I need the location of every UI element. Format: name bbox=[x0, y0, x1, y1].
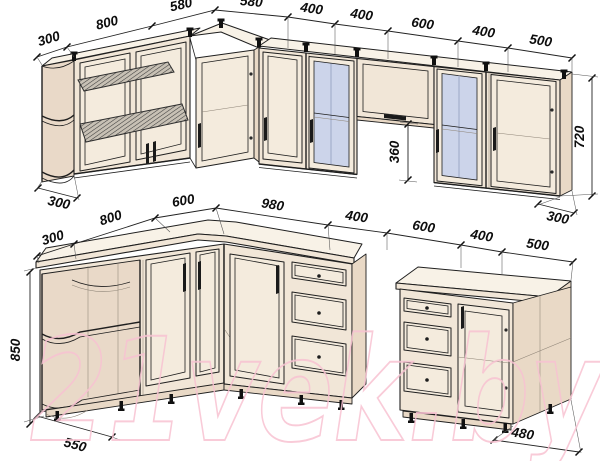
dim-upper-5: 400 bbox=[348, 5, 374, 23]
upper-cabinet-glass-400 bbox=[309, 57, 354, 174]
door-handle bbox=[146, 143, 149, 164]
dim-upper-7: 400 bbox=[470, 22, 496, 41]
dim-lower-2: 600 bbox=[171, 191, 196, 210]
dim-upper-open-height: 360 bbox=[387, 140, 402, 163]
dim-upper-0: 300 bbox=[36, 28, 62, 49]
door-handle bbox=[310, 119, 313, 143]
door-handle bbox=[183, 263, 186, 292]
hinge bbox=[550, 170, 553, 173]
dim-upper-height: 720 bbox=[572, 125, 587, 148]
dim-upper-2: 580 bbox=[168, 0, 194, 14]
dim-upper-3: 580 bbox=[240, 0, 264, 10]
door-handle bbox=[153, 141, 156, 162]
dim-lower-height: 850 bbox=[8, 338, 23, 361]
door-handle bbox=[276, 265, 279, 294]
dim-lower-1: 800 bbox=[98, 207, 125, 228]
upper-open-end-shelf bbox=[42, 60, 74, 183]
dim-upper-right-depth: 300 bbox=[545, 208, 570, 227]
door-handle bbox=[264, 117, 267, 141]
door-handle bbox=[198, 123, 201, 148]
dim-upper-1: 800 bbox=[94, 13, 120, 33]
dim-lower-7: 500 bbox=[525, 236, 550, 254]
upper-cabinet-glass-400b bbox=[436, 69, 482, 186]
upper-cabinet-door-500 bbox=[491, 75, 556, 194]
drawer-knob bbox=[317, 274, 321, 278]
kitchen-dimension-drawing: 300 800 580 580 400 400 600 400 500 360 … bbox=[0, 0, 600, 461]
dim-upper-6: 600 bbox=[410, 15, 435, 33]
hinge bbox=[550, 108, 553, 111]
door-handle bbox=[436, 129, 439, 153]
dim-lower-4: 400 bbox=[343, 207, 369, 225]
upper-cabinet-800-dish-rack bbox=[74, 36, 190, 178]
dim-lower-3: 980 bbox=[260, 195, 285, 213]
upper-corner-cabinet bbox=[190, 38, 259, 168]
upper-cabinet-flip-600 bbox=[357, 58, 434, 128]
hinge bbox=[249, 72, 252, 75]
door-handle bbox=[198, 261, 201, 290]
dim-upper-8: 500 bbox=[528, 31, 553, 49]
dim-lower-5: 600 bbox=[411, 217, 436, 235]
hinge bbox=[249, 136, 252, 139]
door-handle bbox=[493, 127, 496, 151]
dim-lower-6: 400 bbox=[468, 226, 494, 245]
upper-cabinet-door bbox=[263, 52, 302, 163]
dim-upper-4: 400 bbox=[298, 0, 324, 18]
watermark: 21vek.by bbox=[30, 307, 600, 461]
drawing-canvas: 300 800 580 580 400 400 600 400 500 360 … bbox=[0, 0, 600, 461]
